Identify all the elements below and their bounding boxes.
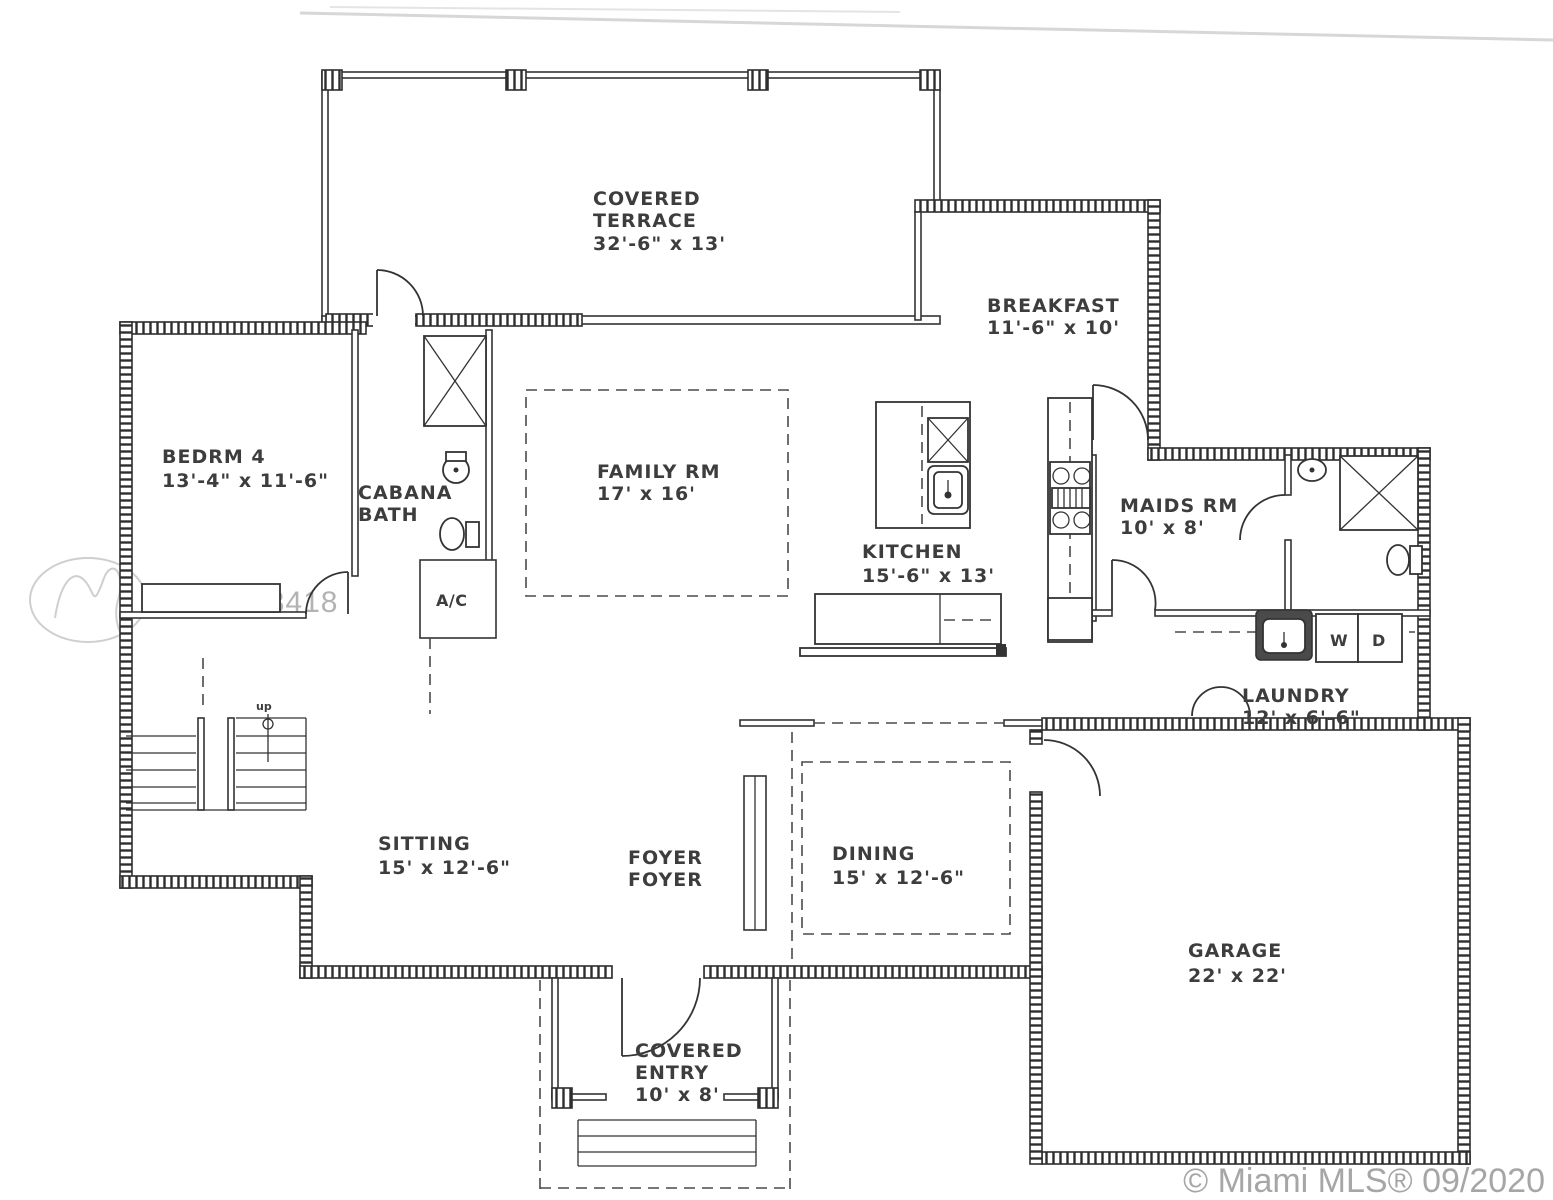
kitchen-range-counter [1048, 398, 1092, 642]
family-dims: 17' x 16' [597, 483, 696, 505]
terrace-label-1: COVERED [593, 188, 701, 210]
floor-plan-page: A10923418 © Miami MLS® 09/2020 [0, 0, 1553, 1200]
breakfast-label: BREAKFAST [987, 295, 1120, 317]
garage-dims: 22' x 22' [1188, 965, 1287, 987]
laundry-label: LAUNDRY [1242, 685, 1350, 707]
maids-shower [1340, 456, 1418, 530]
kitchen-label: KITCHEN [862, 541, 962, 563]
maids-toilet [1387, 545, 1422, 575]
cabana-sink [443, 452, 469, 483]
bedrm4-dims: 13'-4" x 11'-6" [162, 470, 329, 492]
entry-label-1: COVERED [635, 1040, 743, 1062]
laundry-dims: 12' x 6'-6" [1242, 707, 1361, 729]
garage-label: GARAGE [1188, 940, 1282, 962]
washer-label: W [1330, 631, 1348, 650]
cabana-label-1: CABANA [358, 482, 452, 504]
dining-label: DINING [832, 843, 915, 865]
ac-label: A/C [436, 591, 467, 610]
sitting-dims: 15' x 12'-6" [378, 857, 511, 879]
dryer-label: D [1372, 631, 1386, 650]
scan-artifact [300, 7, 1553, 40]
foyer-label-1: FOYER [628, 847, 703, 869]
entry-label-2: ENTRY [635, 1062, 709, 1084]
family-label: FAMILY RM [597, 461, 721, 483]
sitting-label: SITTING [378, 833, 471, 855]
kitchen-dims: 15'-6" x 13' [862, 565, 995, 587]
maids-dims: 10' x 8' [1120, 517, 1205, 539]
floor-plan-svg: A10923418 © Miami MLS® 09/2020 [0, 0, 1553, 1200]
laundry-fixtures: W D [1175, 610, 1415, 662]
cabana-label-2: BATH [358, 504, 419, 526]
mls-footer-watermark: © Miami MLS® 09/2020 [1183, 1162, 1545, 1200]
maids-sink [1298, 459, 1326, 481]
cabana-toilet [440, 518, 479, 550]
stairs: up [126, 700, 306, 810]
foyer-label-2: FOYER [628, 869, 703, 891]
cabana-shower [424, 336, 486, 426]
entry-dims: 10' x 8' [635, 1084, 720, 1106]
kitchen-island-lower [800, 594, 1006, 656]
maids-label: MAIDS RM [1120, 495, 1238, 517]
kitchen-island-sink [876, 402, 970, 528]
stairs-up-label: up [256, 700, 272, 713]
terrace-label-2: TERRACE [593, 210, 697, 232]
entry-steps [578, 1120, 756, 1166]
bedroom-builtin [142, 584, 280, 612]
terrace-dims: 32'-6" x 13' [593, 233, 726, 255]
bedrm4-label: BEDRM 4 [162, 446, 266, 468]
dining-dims: 15' x 12'-6" [832, 867, 965, 889]
breakfast-dims: 11'-6" x 10' [987, 317, 1120, 339]
